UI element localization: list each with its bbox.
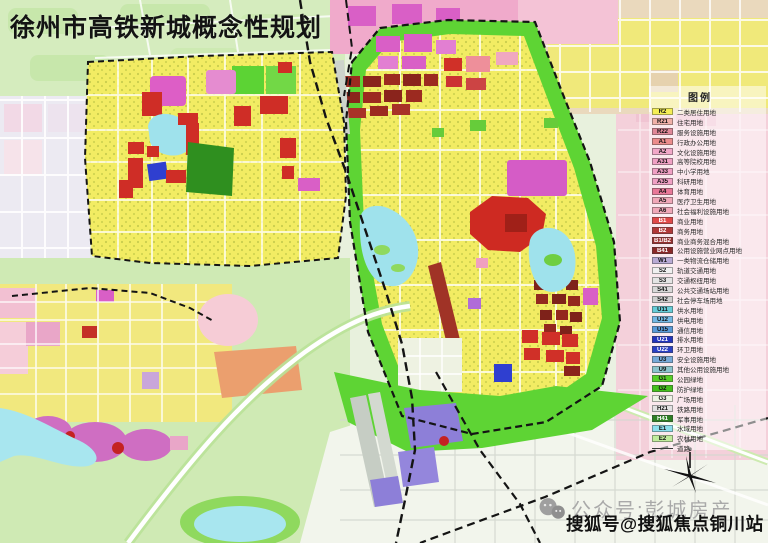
legend-label: 环卫用地 xyxy=(677,344,703,354)
legend-swatch-R21: R21 xyxy=(652,118,673,125)
legend-item: E2农林用地 xyxy=(652,433,763,443)
legend-swatch-U21: U21 xyxy=(652,336,673,343)
legend-swatch-B1: B1 xyxy=(652,217,673,224)
watermark-sohu: 搜狐号@搜狐焦点铜川站 xyxy=(566,511,764,536)
legend-label: 交通枢纽用地 xyxy=(677,275,716,285)
legend-label: 科研用地 xyxy=(677,176,703,186)
legend-label: 供水用地 xyxy=(677,305,703,315)
university-block xyxy=(507,160,567,196)
legend-swatch-U22: U22 xyxy=(652,346,673,353)
legend-swatch-A1: A1 xyxy=(652,138,673,145)
legend-item: S41公共交通场站用地 xyxy=(652,285,763,295)
legend-item: A2文化设施用地 xyxy=(652,147,763,157)
legend-item: H21铁路用地 xyxy=(652,404,763,414)
legend-item: B41公用设施营业网点用地 xyxy=(652,245,763,255)
legend-label: 农林用地 xyxy=(677,433,703,443)
legend-label: 社会停车场用地 xyxy=(677,295,723,305)
legend-item: S42社会停车场用地 xyxy=(652,295,763,305)
planning-map-screenshot: 徐州市高铁新城概念性规划 图例 R2二类居住用地R21住宅用地R22服务设施用地… xyxy=(0,0,768,543)
pink-zone-circle xyxy=(198,294,258,346)
legend-label: 铁路用地 xyxy=(677,404,703,414)
legend-swatch-A33: A33 xyxy=(652,168,673,175)
utility-block xyxy=(494,364,512,382)
legend-label: 道路 xyxy=(677,443,690,453)
legend-swatch-U12: U12 xyxy=(652,316,673,323)
legend-swatch-E1: E1 xyxy=(652,425,673,432)
legend-swatch-R2: R2 xyxy=(652,108,673,115)
west-urban-blocks xyxy=(0,96,90,266)
legend-label: 中小学用地 xyxy=(677,166,710,176)
legend-item: G2防护绿地 xyxy=(652,384,763,394)
legend-swatch-B41: B41 xyxy=(652,247,673,254)
legend-item: A5医疗卫生用地 xyxy=(652,196,763,206)
legend-swatch-H21: H21 xyxy=(652,405,673,412)
legend-rows: R2二类居住用地R21住宅用地R22服务设施用地A1行政办公用地A2文化设施用地… xyxy=(652,107,763,453)
legend-swatch-E2: E2 xyxy=(652,435,673,442)
legend-item: B1商业用地 xyxy=(652,216,763,226)
legend-label: 供电用地 xyxy=(677,315,703,325)
legend-swatch-U11: U11 xyxy=(652,306,673,313)
wechat-icon xyxy=(538,497,566,521)
legend-label: 商业用地 xyxy=(677,216,703,226)
legend-swatch-W1: W1 xyxy=(652,257,673,264)
map-title: 徐州市高铁新城概念性规划 xyxy=(10,8,322,44)
legend-swatch-S41: S41 xyxy=(652,286,673,293)
legend-swatch-A31: A31 xyxy=(652,158,673,165)
legend-item: U9其他公用设施用地 xyxy=(652,364,763,374)
legend-item: S3交通枢纽用地 xyxy=(652,275,763,285)
legend-swatch-U9: U9 xyxy=(652,366,673,373)
legend-item: R2二类居住用地 xyxy=(652,107,763,117)
legend-item: A35科研用地 xyxy=(652,176,763,186)
legend-label: 公共交通场站用地 xyxy=(677,285,729,295)
legend-label: 广场用地 xyxy=(677,394,703,404)
legend-item: W1一类物流仓储用地 xyxy=(652,255,763,265)
legend-label: 公用设施营业网点用地 xyxy=(677,245,742,255)
legend-swatch-U15: U15 xyxy=(652,326,673,333)
legend-swatch-S3: S3 xyxy=(652,277,673,284)
legend-item: 道路 xyxy=(652,443,763,453)
legend-swatch-A4: A4 xyxy=(652,188,673,195)
legend-swatch-G1: G1 xyxy=(652,375,673,382)
legend-label: 住宅用地 xyxy=(677,117,703,127)
legend-swatch-A5: A5 xyxy=(652,197,673,204)
legend-panel: 图例 R2二类居住用地R21住宅用地R22服务设施用地A1行政办公用地A2文化设… xyxy=(649,86,766,450)
legend-item: A33中小学用地 xyxy=(652,166,763,176)
legend-swatch-A35: A35 xyxy=(652,178,673,185)
legend-item: U3安全设施用地 xyxy=(652,354,763,364)
legend-label: 一类物流仓储用地 xyxy=(677,255,729,265)
legend-item: A6社会福利设施用地 xyxy=(652,206,763,216)
legend-item: U21排水用地 xyxy=(652,334,763,344)
legend-label: 商务用地 xyxy=(677,226,703,236)
legend-swatch-S42: S42 xyxy=(652,296,673,303)
legend-item: B1/B2商业商务混合用地 xyxy=(652,236,763,246)
legend-swatch-A2: A2 xyxy=(652,148,673,155)
legend-label: 公园绿地 xyxy=(677,374,703,384)
legend-swatch-G2: G2 xyxy=(652,385,673,392)
legend-swatch-A6: A6 xyxy=(652,207,673,214)
legend-label: 防护绿地 xyxy=(677,384,703,394)
legend-item: E1水域用地 xyxy=(652,424,763,434)
legend-swatch-S2: S2 xyxy=(652,267,673,274)
legend-label: 服务设施用地 xyxy=(677,127,716,137)
watermark-sohu-text: 搜狐号@搜狐焦点铜川站 xyxy=(566,511,764,536)
legend-item: G1公园绿地 xyxy=(652,374,763,384)
legend-swatch-U3: U3 xyxy=(652,356,673,363)
legend-item: S2轨道交通用地 xyxy=(652,265,763,275)
legend-swatch-H41: H41 xyxy=(652,415,673,422)
legend-label: 行政办公用地 xyxy=(677,137,716,147)
legend-label: 二类居住用地 xyxy=(677,107,716,117)
legend-label: 其他公用设施用地 xyxy=(677,364,729,374)
legend-swatch-B2: B2 xyxy=(652,227,673,234)
legend-swatch-G3: G3 xyxy=(652,395,673,402)
low-density-zone xyxy=(398,338,462,392)
legend-item: H41军事用地 xyxy=(652,414,763,424)
legend-swatch-B1/B2: B1/B2 xyxy=(652,237,673,244)
legend-swatch-R22: R22 xyxy=(652,128,673,135)
legend-item: A31高等院校用地 xyxy=(652,156,763,166)
legend-label: 高等院校用地 xyxy=(677,156,716,166)
legend-item: G3广场用地 xyxy=(652,394,763,404)
legend-item: B2商务用地 xyxy=(652,226,763,236)
legend-label: 体育用地 xyxy=(677,186,703,196)
legend-label: 轨道交通用地 xyxy=(677,265,716,275)
legend-label: 通信用地 xyxy=(677,325,703,335)
legend-label: 排水用地 xyxy=(677,334,703,344)
legend-item: U11供水用地 xyxy=(652,305,763,315)
legend-item: U12供电用地 xyxy=(652,315,763,325)
legend-label: 医疗卫生用地 xyxy=(677,196,716,206)
legend-label: 军事用地 xyxy=(677,414,703,424)
legend-label: 安全设施用地 xyxy=(677,354,716,364)
legend-label: 商业商务混合用地 xyxy=(677,236,729,246)
legend-label: 文化设施用地 xyxy=(677,147,716,157)
legend-label: 水域用地 xyxy=(677,423,703,433)
military-green-block xyxy=(186,142,234,196)
legend-item: U22环卫用地 xyxy=(652,344,763,354)
legend-item: R21住宅用地 xyxy=(652,117,763,127)
legend-label: 社会福利设施用地 xyxy=(677,206,729,216)
road-line-symbol xyxy=(652,448,673,449)
legend-item: U15通信用地 xyxy=(652,325,763,335)
legend-item: A1行政办公用地 xyxy=(652,137,763,147)
legend-item: R22服务设施用地 xyxy=(652,127,763,137)
legend-title: 图例 xyxy=(688,89,763,104)
legend-item: A4体育用地 xyxy=(652,186,763,196)
west-planning-area xyxy=(85,52,346,266)
